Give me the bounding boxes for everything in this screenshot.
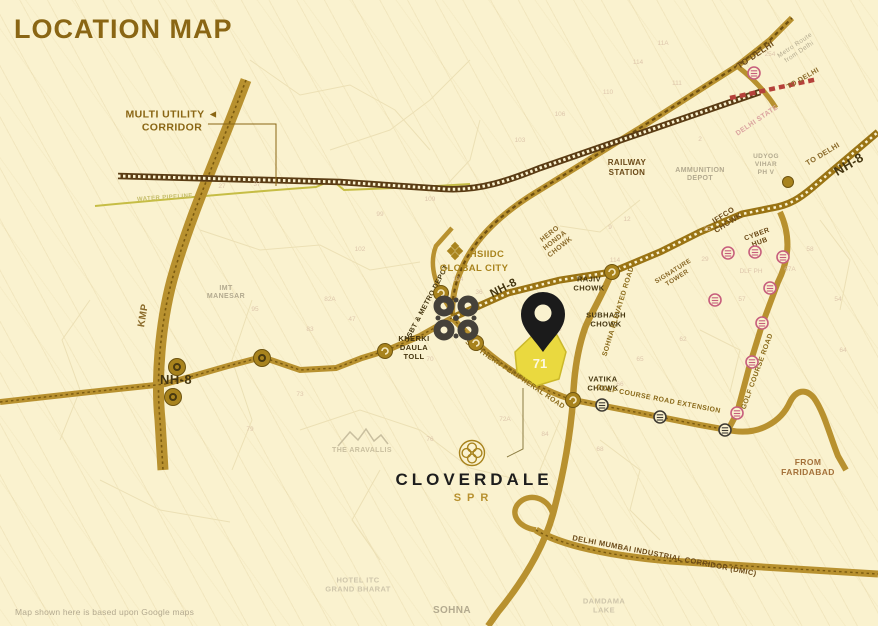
map-label-dmic: DELHI MUMBAI INDUSTRIAL CORRIDOR (DMIC) [572,533,758,578]
sector-number: 104 [453,276,464,283]
metro-station-icon [749,246,761,258]
sector-number: 57 [738,296,746,303]
map-label-iffco-chowk: IFFCOCHOWK [708,203,744,235]
map-label-imt-manesar: IMTMANESAR [207,285,245,300]
map-label-sohna: SOHNA [433,605,471,616]
sector-number: 102 [355,246,366,253]
mountains-icon [338,429,388,446]
map-label-hsiidc: HSIIDC [470,249,505,260]
metro-station-icon [756,317,768,329]
map-label-delhi-state: DELHI STATE [735,104,780,137]
map-label-udyog-vihar-ph-v: UDYOGVIHARPH V [753,153,779,176]
sector-number: 11A [657,40,669,47]
sector-number: 47 [348,316,356,323]
sector-number: 83 [306,326,314,333]
metro-station-icon [764,282,776,294]
map-label-hotel-itc-grand-bharat: HOTEL ITCGRAND BHARAT [325,576,391,594]
metro-station-icon [731,407,743,419]
map-label-kherki-daula-toll: KHERKIDAULATOLL [398,334,429,361]
plot-number: 71 [533,356,547,371]
map-label-the-aravallis: THE ARAVALLIS [332,447,392,454]
map-canvas: 71 MULTI UTILITY ◄CORRIDORKMPIMTMANESARN… [0,0,878,626]
sector-number: 110 [603,89,614,96]
map-label-kmp: KMP [136,303,151,328]
road-kmp-corridor [159,80,247,470]
metro-station-dark-icon [719,424,731,436]
metro-station-icon [746,356,758,368]
sector-number: 103 [515,137,526,144]
sector-number: 67A [784,266,796,273]
map-label-rajiv-chowk: RAJIVCHOWK [573,275,604,293]
junction-icon [378,344,393,359]
brand-subtitle: SPR [374,492,574,504]
road-nh8-west [0,318,452,402]
hsiidc-icon [447,242,463,260]
map-label-water-pipeline: WATER PIPELINE [137,193,193,203]
sector-number: 72A [499,416,511,423]
sector-number: 65 [636,356,644,363]
metro-station-icon [777,251,789,263]
landmark-dot-icon [783,177,794,188]
sector-number: 106 [555,111,566,118]
sector-number: 37 [253,181,261,188]
sector-number: 114 [610,257,621,264]
sector-number: 29 [701,256,709,263]
sector-number: 58 [806,246,814,253]
junction-icon [605,265,620,280]
landmark-icon [254,350,271,367]
sector-number: 36 [475,289,483,296]
sector-number: 114 [633,59,644,66]
brand-name: CLOVERDALE [374,470,574,490]
location-map-page: 71 MULTI UTILITY ◄CORRIDORKMPIMTMANESARN… [0,0,878,626]
map-label-from-faridabad: FROMFARIDABAD [781,457,835,477]
sector-number: 95 [251,306,259,313]
sector-number: 54 [834,296,842,303]
map-label-railway-station: RAILWAYSTATION [608,158,647,177]
sector-number: 70 [426,356,434,363]
sector-number: DLF PH [739,268,762,275]
clover-logo-icon [460,441,485,466]
metro-station-icon [748,67,760,79]
sector-number: 62 [679,336,687,343]
map-label-multi-utility-corridor: MULTI UTILITY ◄CORRIDOR [126,109,219,134]
pin-hole [535,305,552,322]
sector-number: 27 [218,183,226,190]
map-label-hero-honda-chowk: HEROHONDACHOWK [536,222,574,259]
sector-number: 68 [596,446,604,453]
map-label-to-delhi-railway: TO DELHI [786,67,820,91]
page-title: LOCATION MAP [14,14,232,45]
sector-number: 254 [765,51,776,58]
sector-number: 25 [703,226,711,233]
sector-number: 82A [324,296,336,303]
map-label-metro-route-note: Metro Routefrom Delhi [776,31,818,66]
map-label-global-city: GLOBAL CITY [440,263,509,274]
brand-logo: CLOVERDALE SPR [374,470,574,504]
sector-number: 64 [839,347,847,354]
sector-number: 66 [616,381,624,388]
sector-number: 76 [426,436,434,443]
metro-station-dark-icon [654,411,666,423]
landmark-icon [169,359,186,376]
sector-number: 12 [623,216,631,223]
sector-number: 84 [541,431,549,438]
junction-icon [566,393,581,408]
map-label-ammunition-depot: AMMUNITIONDEPOT [675,167,725,182]
sector-number: 111 [672,80,682,87]
sector-number: 109 [425,196,436,203]
sector-number: 9 [608,224,612,231]
landmark-icon [165,389,182,406]
map-label-signature-tower: SIGNATURETOWER [654,257,697,292]
sector-number: 79 [246,426,254,433]
map-disclaimer: Map shown here is based upon Google maps [15,607,194,617]
sector-number: 2 [698,136,702,143]
delhi-state-border [730,79,818,98]
sector-number: 99 [376,211,384,218]
sector-number: 73 [296,391,304,398]
metro-station-dark-icon [596,399,608,411]
metro-station-icon [709,294,721,306]
metro-station-icon [722,247,734,259]
map-label-damdama-lake: DAMDAMALAKE [583,597,626,615]
